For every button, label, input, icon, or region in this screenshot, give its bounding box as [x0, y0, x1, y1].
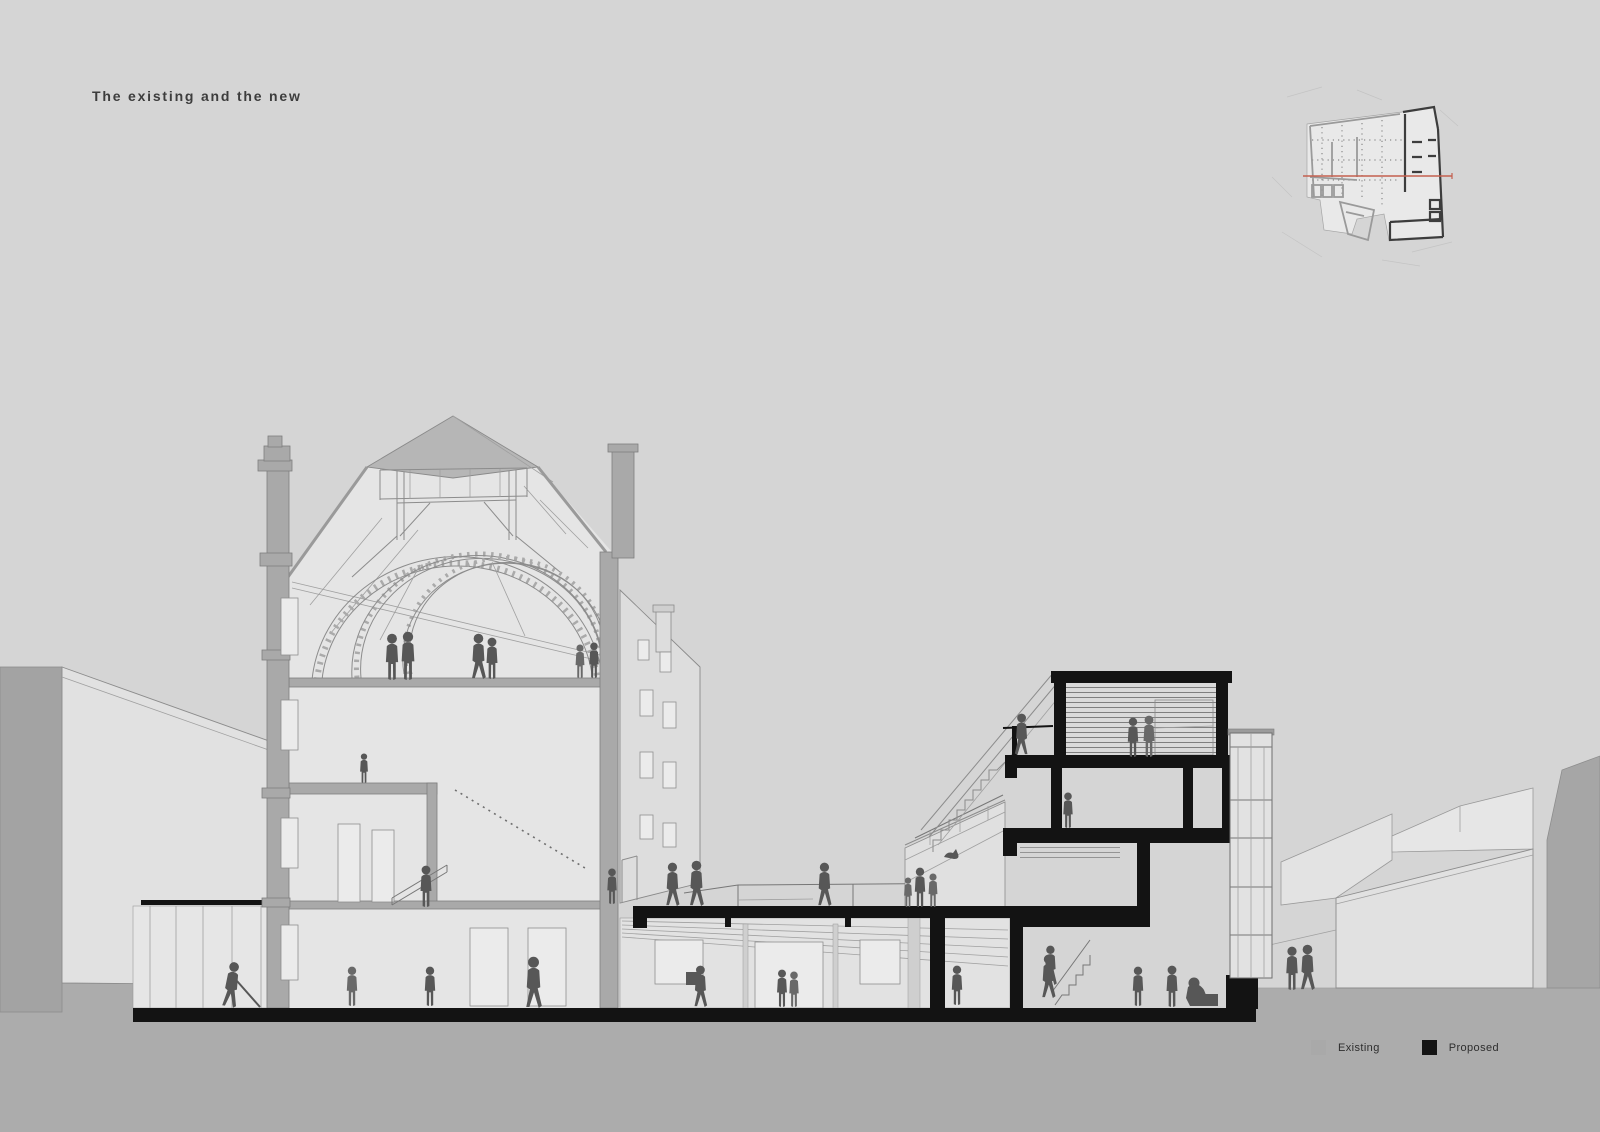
proposed-swatch: [1422, 1040, 1437, 1055]
legend-item-existing: Existing: [1311, 1040, 1380, 1055]
kneeling-figure: [1186, 978, 1218, 1007]
canopy: [141, 900, 277, 905]
key-plan: [1272, 87, 1458, 266]
proposed-label: Proposed: [1449, 1042, 1499, 1054]
right-existing-building: [905, 672, 1062, 907]
legend: Existing Proposed: [1311, 1040, 1499, 1055]
courtyard-elevation: [620, 590, 700, 903]
sheet: The existing and the new: [0, 0, 1600, 1132]
left-context-buildings: [0, 667, 283, 1012]
glazed-tower: [1228, 729, 1274, 978]
section-drawing: [0, 0, 1600, 1132]
ground-slab: [133, 1008, 1256, 1022]
legend-item-proposed: Proposed: [1422, 1040, 1499, 1055]
existing-swatch: [1311, 1040, 1326, 1055]
existing-label: Existing: [1338, 1042, 1380, 1054]
